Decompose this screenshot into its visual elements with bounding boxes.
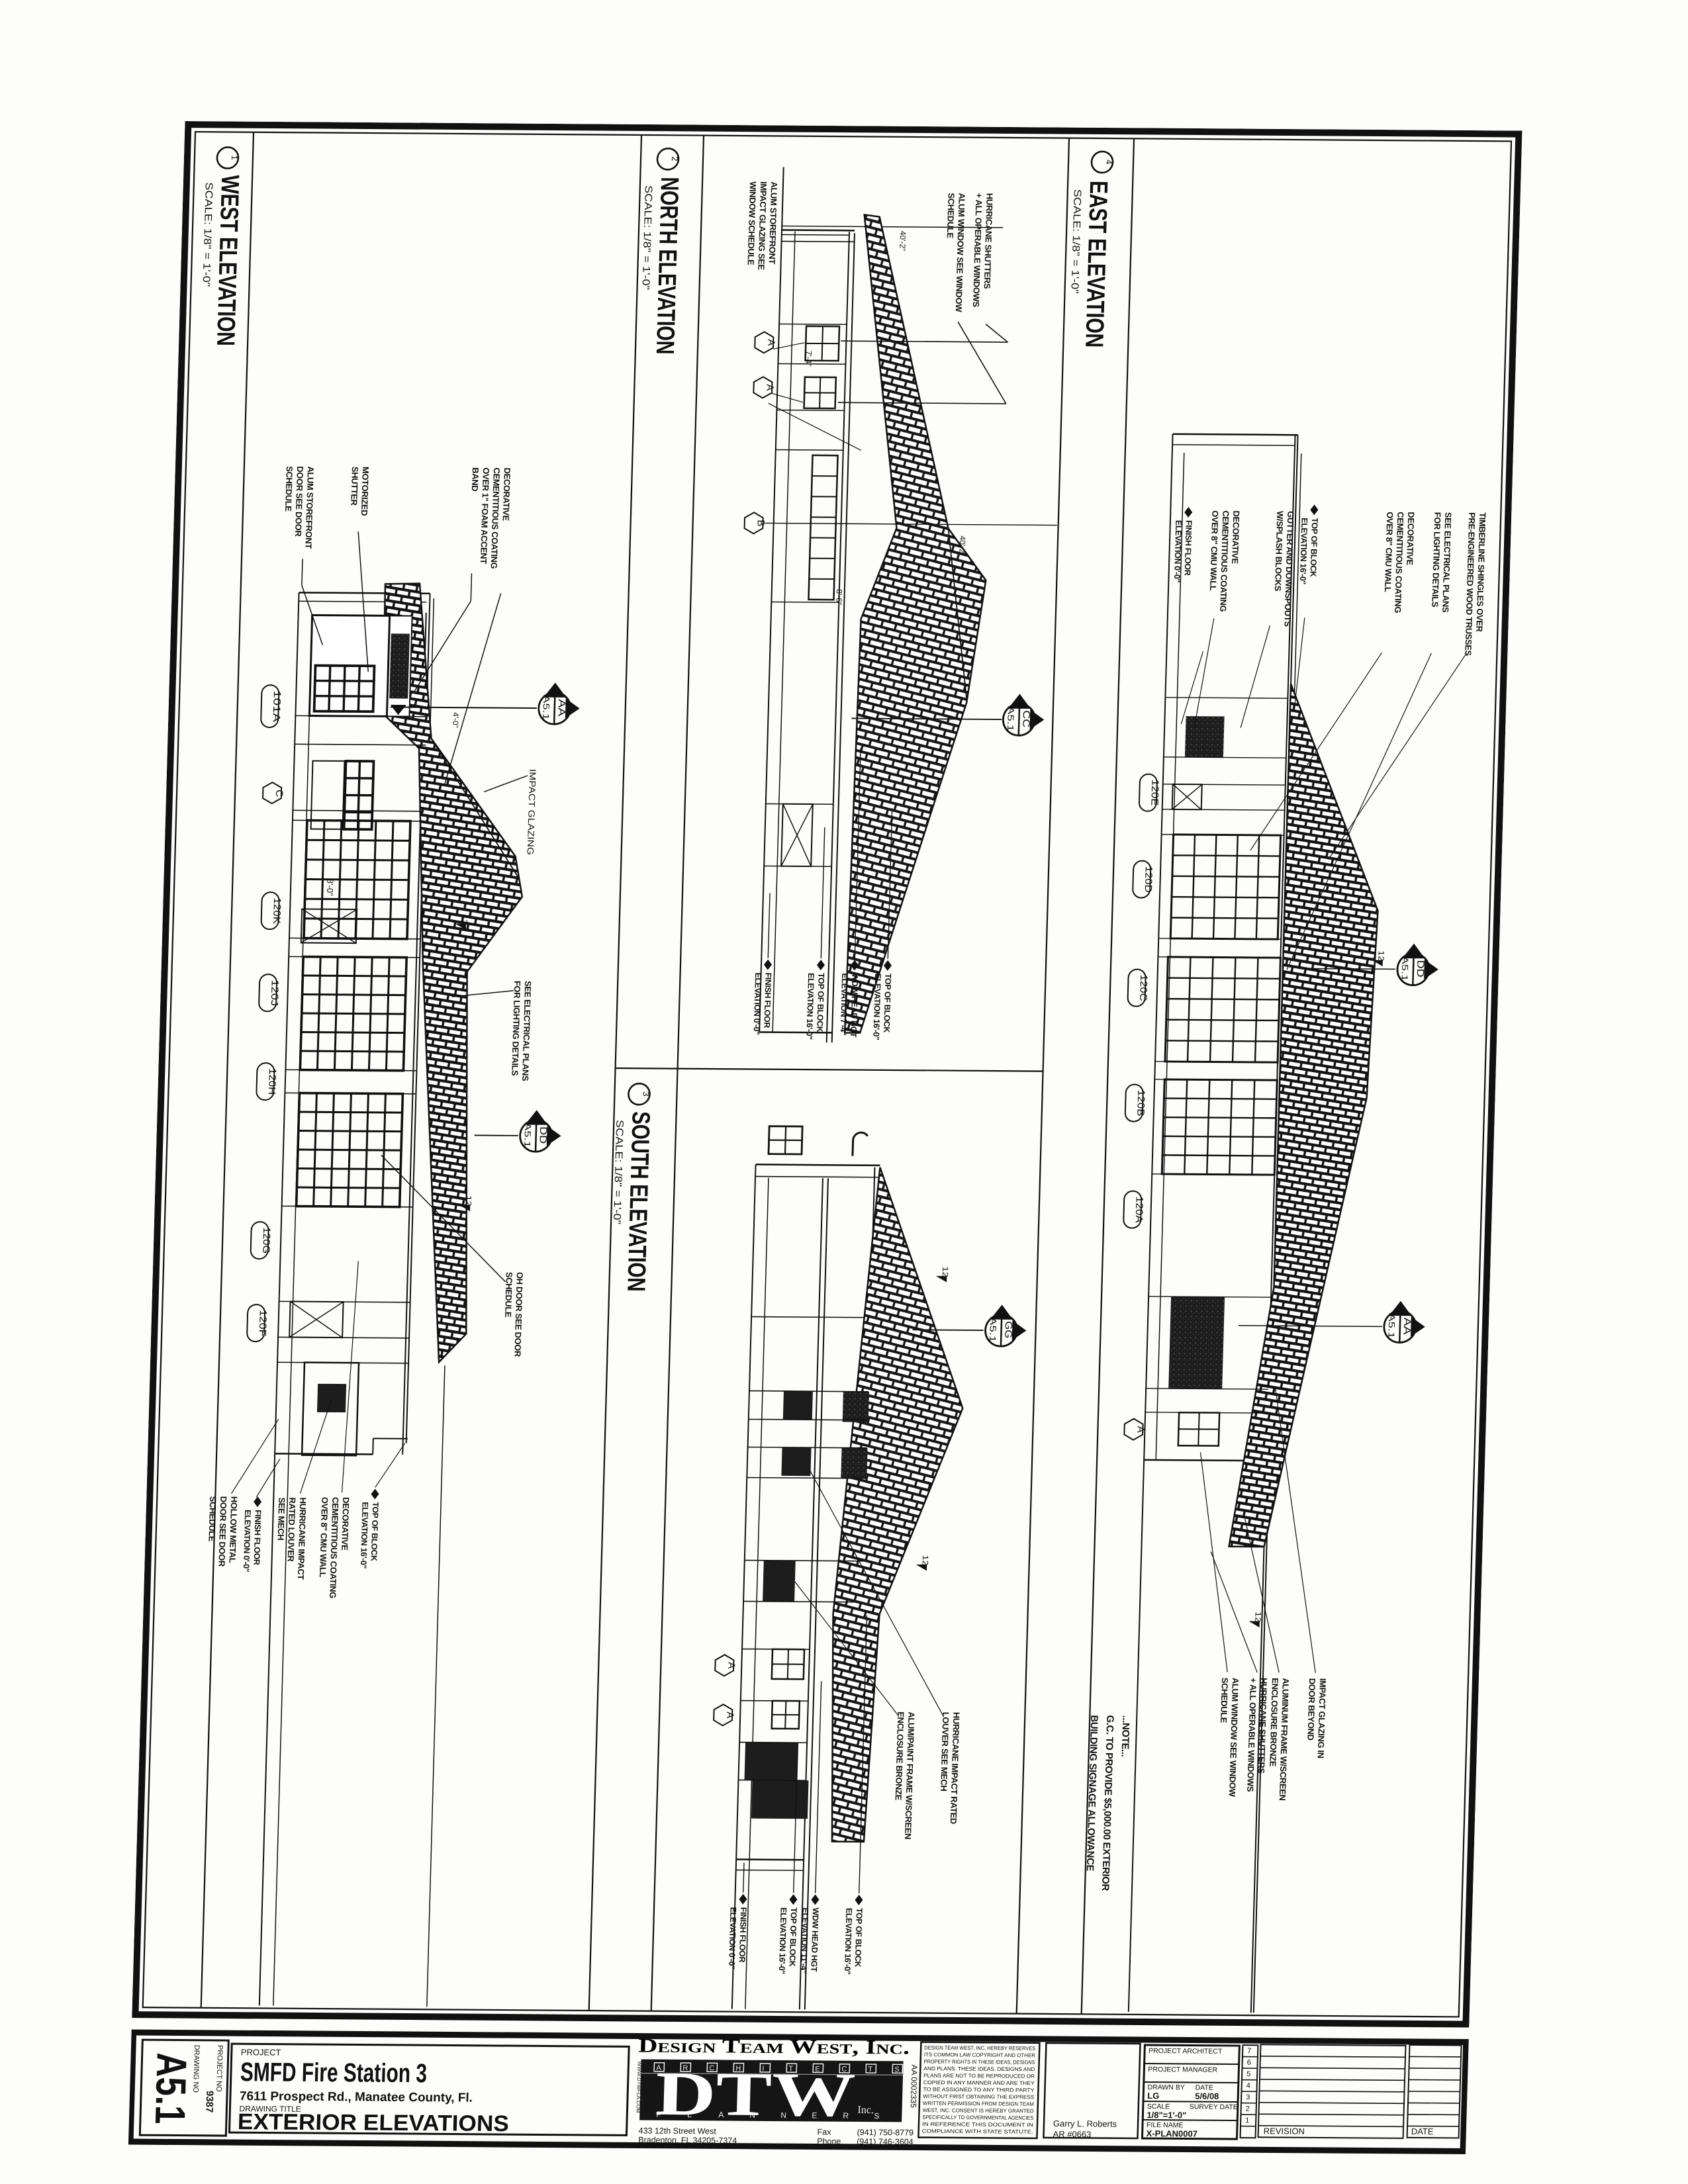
- svg-text:40'-2": 40'-2": [898, 231, 908, 251]
- svg-text:SCHEDULE: SCHEDULE: [1219, 1678, 1230, 1723]
- svg-text:...NOTE...: ...NOTE...: [1119, 1715, 1132, 1757]
- svg-text:9387: 9387: [203, 2091, 215, 2113]
- svg-text:S: S: [874, 2111, 879, 2120]
- svg-text:(941) 746-3604: (941) 746-3604: [857, 2137, 914, 2147]
- svg-text:ELEVATION 0'-0": ELEVATION 0'-0": [242, 1510, 253, 1572]
- svg-text:1: 1: [230, 155, 240, 159]
- svg-text:6: 6: [1247, 2059, 1251, 2067]
- svg-text:7611 Prospect Rd., Manatee Cou: 7611 Prospect Rd., Manatee County, Fl.: [240, 2089, 473, 2105]
- svg-text:WEST ELEVATION: WEST ELEVATION: [211, 175, 244, 345]
- svg-text:A5.1: A5.1: [1399, 956, 1410, 981]
- svg-text:ELEVATION 16'-0": ELEVATION 16'-0": [843, 1908, 854, 1975]
- svg-text:RATED LOUVER: RATED LOUVER: [286, 1498, 298, 1563]
- svg-text:W/SPLASH BLOCKS: W/SPLASH BLOCKS: [1273, 511, 1285, 592]
- svg-text:ELEVATION 16'-0": ELEVATION 16'-0": [777, 1907, 788, 1974]
- svg-text:4: 4: [1246, 2082, 1250, 2090]
- svg-text:A5.1: A5.1: [1386, 1313, 1397, 1338]
- svg-text:WDW HEAD HGT: WDW HEAD HGT: [809, 1907, 820, 1972]
- svg-text:SCHEDULE: SCHEDULE: [207, 1496, 218, 1542]
- svg-text:120H: 120H: [266, 1068, 278, 1095]
- svg-text:FOR LIGHTING DETAILS: FOR LIGHTING DETAILS: [510, 981, 522, 1076]
- svg-text:HOLLOW METAL: HOLLOW METAL: [228, 1496, 240, 1563]
- svg-text:2: 2: [1246, 2105, 1250, 2113]
- svg-text:(941) 750-8779: (941) 750-8779: [857, 2128, 914, 2138]
- svg-text:7'-4": 7'-4": [804, 351, 814, 367]
- svg-text:12: 12: [1253, 1612, 1262, 1622]
- svg-text:12: 12: [460, 914, 469, 925]
- svg-text:FINISH FLOOR: FINISH FLOOR: [252, 1510, 262, 1565]
- svg-text:DESIGN TEAM WEST, INC. HEREBY: DESIGN TEAM WEST, INC. HEREBY RESERVES: [924, 2045, 1035, 2052]
- svg-text:TO BE ASSIGNED TO ANY THIRD PA: TO BE ASSIGNED TO ANY THIRD PARTY: [923, 2087, 1035, 2093]
- svg-text:Design Team West, Inc.: Design Team West, Inc.: [638, 2035, 910, 2059]
- svg-text:7: 7: [1247, 2047, 1251, 2055]
- svg-text:DRAWING NO: DRAWING NO: [191, 2045, 201, 2093]
- svg-text:120G: 120G: [260, 1227, 272, 1253]
- svg-text:WWW.DTWFLA.COM: WWW.DTWFLA.COM: [635, 2062, 642, 2114]
- svg-text:IMPACT GLAZING: IMPACT GLAZING: [526, 769, 538, 855]
- svg-text:A5.1: A5.1: [988, 1317, 998, 1342]
- svg-text:DECORATIVE: DECORATIVE: [501, 468, 512, 522]
- svg-text:433 12th Street West: 433 12th Street West: [638, 2126, 716, 2136]
- svg-text:120A: 120A: [1133, 1197, 1145, 1223]
- svg-text:LG: LG: [1147, 2091, 1159, 2101]
- svg-text:OVER 8" CMU WALL: OVER 8" CMU WALL: [1208, 510, 1220, 591]
- svg-text:DATE: DATE: [1411, 2126, 1434, 2136]
- svg-text:120E: 120E: [1149, 780, 1160, 806]
- svg-text:DOOR SEE DOOR: DOOR SEE DOOR: [216, 1496, 228, 1567]
- svg-text:PROJECT NO: PROJECT NO: [214, 2045, 224, 2092]
- svg-text:PRE-ENGINEERED WOOD TRUSSES: PRE-ENGINEERED WOOD TRUSSES: [1463, 512, 1477, 657]
- svg-text:DECORATIVE: DECORATIVE: [340, 1497, 351, 1551]
- svg-text:ELEVATION 0'-0": ELEVATION 0'-0": [1172, 520, 1184, 583]
- svg-text:SCALE: 1/8" = 1'-0": SCALE: 1/8" = 1'-0": [201, 182, 214, 287]
- svg-text:SURVEY DATE: SURVEY DATE: [1190, 2103, 1238, 2112]
- svg-text:ENCLOSURE BRONZE: ENCLOSURE BRONZE: [894, 1711, 906, 1801]
- svg-text:TOP OF BLOCK: TOP OF BLOCK: [788, 1907, 799, 1967]
- svg-text:A5.1: A5.1: [146, 2052, 196, 2124]
- svg-text:FINISH FLOOR: FINISH FLOOR: [1183, 520, 1194, 576]
- svg-text:ITS COMMON LAW COPYRIGHT AND O: ITS COMMON LAW COPYRIGHT AND OTHER: [924, 2052, 1035, 2058]
- svg-text:EAST ELEVATION: EAST ELEVATION: [1080, 181, 1112, 347]
- svg-text:Garry L. Roberts: Garry L. Roberts: [1053, 2118, 1117, 2129]
- svg-text:+ ALL OPERABLE WINDOWS: + ALL OPERABLE WINDOWS: [971, 193, 984, 308]
- svg-text:X-PLAN0007: X-PLAN0007: [1146, 2128, 1197, 2139]
- svg-text:AA 0002335: AA 0002335: [909, 2064, 919, 2108]
- svg-text:NORTH ELEVATION: NORTH ELEVATION: [651, 177, 683, 354]
- svg-text:1: 1: [1245, 2116, 1249, 2124]
- svg-text:120F: 120F: [257, 1310, 269, 1336]
- svg-text:A: A: [1135, 1426, 1146, 1433]
- svg-text:COMPLIANCE WITH STATE STATUTE.: COMPLIANCE WITH STATE STATUTE.: [922, 2128, 1033, 2135]
- svg-text:40'-2": 40'-2": [957, 536, 967, 557]
- svg-text:FINISH FLOOR: FINISH FLOOR: [762, 973, 773, 1028]
- svg-text:A5.1: A5.1: [522, 1122, 533, 1148]
- svg-text:ELEVATION 11'-4": ELEVATION 11'-4": [799, 1907, 810, 1974]
- svg-text:SCALE: 1/8" = 1'-0": SCALE: 1/8" = 1'-0": [1068, 189, 1082, 294]
- svg-text:IN REFERENCE THIS DOCUMENT IN: IN REFERENCE THIS DOCUMENT IN: [922, 2121, 1034, 2128]
- svg-text:ELEVATION 16'-0": ELEVATION 16'-0": [359, 1502, 370, 1569]
- svg-text:SHUTTER: SHUTTER: [349, 467, 360, 506]
- svg-text:WDW HEAD HGT: WDW HEAD HGT: [849, 973, 860, 1037]
- svg-text:5: 5: [1246, 2070, 1250, 2078]
- svg-text:BUILDING SIGNAGE ALLOWANCE: BUILDING SIGNAGE ALLOWANCE: [1084, 1715, 1100, 1871]
- svg-text:SCHEDULE: SCHEDULE: [945, 193, 957, 238]
- svg-text:AR #0663: AR #0663: [1053, 2129, 1091, 2139]
- svg-text:WITHOUT FIRST OBTAINING THE EX: WITHOUT FIRST OBTAINING THE EXPRESS: [923, 2093, 1034, 2100]
- svg-text:PLANS ARE NOT TO BE REPRODUCED: PLANS ARE NOT TO BE REPRODUCED OR: [923, 2073, 1035, 2079]
- svg-text:TOP OF BLOCK: TOP OF BLOCK: [1309, 518, 1320, 577]
- svg-text:AND PLANS. THESE IDEAS, DESIGN: AND PLANS. THESE IDEAS, DESIGNS AND: [923, 2066, 1035, 2072]
- svg-text:8'-6": 8'-6": [834, 589, 844, 605]
- svg-text:12: 12: [941, 1267, 950, 1277]
- svg-text:DTW: DTW: [655, 2060, 857, 2130]
- svg-text:WINDOW SCHEDULE: WINDOW SCHEDULE: [746, 181, 759, 265]
- svg-text:A: A: [726, 1662, 737, 1668]
- svg-text:120C: 120C: [1137, 975, 1149, 1001]
- svg-text:WRITTEN PERMISSION FROM DESIGN: WRITTEN PERMISSION FROM DESIGN TEAM: [923, 2101, 1035, 2107]
- svg-text:SOUTH ELEVATION: SOUTH ELEVATION: [622, 1111, 655, 1291]
- svg-text:1/8"=1'-0": 1/8"=1'-0": [1147, 2110, 1186, 2120]
- svg-text:A: A: [765, 339, 776, 345]
- svg-text:BAND: BAND: [470, 467, 481, 491]
- svg-text:OVER 8" CMU WALL: OVER 8" CMU WALL: [318, 1497, 330, 1578]
- svg-text:12: 12: [464, 1195, 473, 1206]
- svg-text:ELEVATION 0'-0": ELEVATION 0'-0": [752, 972, 763, 1035]
- svg-text:5/6/08: 5/6/08: [1195, 2091, 1219, 2101]
- svg-text:120D: 120D: [1143, 866, 1154, 893]
- svg-text:DECORATIVE: DECORATIVE: [1405, 512, 1416, 565]
- svg-text:8'-0": 8'-0": [325, 879, 336, 896]
- svg-text:ELEVATION 16'-0": ELEVATION 16'-0": [871, 974, 882, 1040]
- svg-text:B: B: [755, 520, 767, 526]
- svg-text:DECORATIVE: DECORATIVE: [1230, 510, 1241, 564]
- svg-text:2: 2: [670, 156, 680, 161]
- svg-text:FOR LIGHTING DETAILS: FOR LIGHTING DETAILS: [1430, 512, 1442, 608]
- svg-text:120J: 120J: [269, 979, 281, 1006]
- svg-text:A: A: [724, 1711, 735, 1718]
- svg-text:COPIED IN ANY MANNER AND ARE T: COPIED IN ANY MANNER AND ARE THEY: [923, 2079, 1035, 2086]
- svg-text:4'-0": 4'-0": [451, 712, 461, 728]
- svg-text:PROJECT MANAGER: PROJECT MANAGER: [1148, 2066, 1218, 2074]
- svg-text:+ ALL OPERABLE WINDOWS: + ALL OPERABLE WINDOWS: [1245, 1678, 1258, 1792]
- svg-text:G.C. TO PROVIDE $5,000.00 EXTE: G.C. TO PROVIDE $5,000.00 EXTERIOR: [1100, 1715, 1115, 1891]
- svg-text:101A: 101A: [271, 690, 283, 722]
- svg-text:TOP OF BLOCK: TOP OF BLOCK: [853, 1908, 865, 1968]
- svg-text:A: A: [764, 384, 775, 390]
- svg-text:SMFD Fire Station 3: SMFD Fire Station 3: [240, 2058, 427, 2088]
- svg-text:C: C: [273, 790, 285, 797]
- svg-text:120B: 120B: [1135, 1090, 1147, 1116]
- svg-text:Inc.: Inc.: [857, 2105, 874, 2116]
- svg-text:TOP OF BLOCK: TOP OF BLOCK: [815, 973, 826, 1032]
- svg-text:REVISION: REVISION: [1264, 2126, 1305, 2136]
- svg-text:A5.1: A5.1: [541, 695, 551, 720]
- svg-text:12: 12: [1376, 950, 1385, 961]
- svg-text:LOUVER SEE MECH: LOUVER SEE MECH: [939, 1712, 951, 1792]
- svg-text:SEE MECH: SEE MECH: [276, 1497, 287, 1540]
- svg-text:3: 3: [641, 1091, 651, 1096]
- svg-text:A5.1: A5.1: [1006, 706, 1016, 731]
- svg-text:TOP OF BLOCK: TOP OF BLOCK: [882, 974, 893, 1033]
- svg-text:SCHEDULE: SCHEDULE: [503, 1272, 514, 1318]
- svg-text:FINISH FLOOR: FINISH FLOOR: [737, 1907, 748, 1963]
- svg-text:ELEVATION 7'-4": ELEVATION 7'-4": [839, 973, 850, 1036]
- svg-text:T: T: [868, 2066, 872, 2073]
- svg-text:DOOR SEE DOOR: DOOR SEE DOOR: [293, 466, 305, 537]
- svg-text:EXTERIOR ELEVATIONS: EXTERIOR ELEVATIONS: [237, 2109, 509, 2136]
- svg-text:OVER 8" CMU WALL: OVER 8" CMU WALL: [1383, 512, 1395, 592]
- svg-text:ELEVATION 16'-0": ELEVATION 16'-0": [804, 973, 816, 1040]
- svg-text:WEST, INC. CONSENT IS HEREBY G: WEST, INC. CONSENT IS HEREBY GRANTED: [922, 2107, 1033, 2114]
- svg-text:12: 12: [921, 1555, 930, 1565]
- svg-text:MOTORIZED: MOTORIZED: [359, 467, 371, 516]
- svg-text:ELEVATION 0'-0": ELEVATION 0'-0": [727, 1907, 738, 1970]
- svg-text:ELEVATION 16'-0": ELEVATION 16'-0": [1298, 518, 1309, 584]
- svg-text:PROJECT ARCHITECT: PROJECT ARCHITECT: [1149, 2047, 1223, 2056]
- svg-text:PROPERTY RIGHTS IN THESE IDEAS: PROPERTY RIGHTS IN THESE IDEAS, DESIGNS: [924, 2059, 1035, 2066]
- svg-text:3: 3: [1246, 2093, 1250, 2101]
- svg-text:S: S: [894, 2066, 900, 2073]
- svg-text:SCALE: 1/8" = 1'-0": SCALE: 1/8" = 1'-0": [640, 185, 654, 290]
- svg-text:Phone: Phone: [817, 2136, 841, 2146]
- svg-text:4: 4: [1104, 159, 1114, 164]
- svg-text:DOOR BEYOND: DOOR BEYOND: [1305, 1678, 1317, 1741]
- svg-text:ENCLOSURE BRONZE: ENCLOSURE BRONZE: [1268, 1678, 1280, 1767]
- svg-text:Fax: Fax: [817, 2127, 831, 2136]
- svg-text:TOP OF BLOCK: TOP OF BLOCK: [369, 1502, 381, 1561]
- svg-text:SPECIFICALLY TO GOVERNMENTAL A: SPECIFICALLY TO GOVERNMENTAL AGENCIES: [922, 2115, 1033, 2121]
- svg-text:PROJECT: PROJECT: [241, 2047, 281, 2057]
- svg-text:Bradenton, FL 34205-7374: Bradenton, FL 34205-7374: [638, 2136, 737, 2146]
- svg-text:120K: 120K: [271, 897, 283, 924]
- svg-text:SCHEDULE: SCHEDULE: [283, 466, 295, 512]
